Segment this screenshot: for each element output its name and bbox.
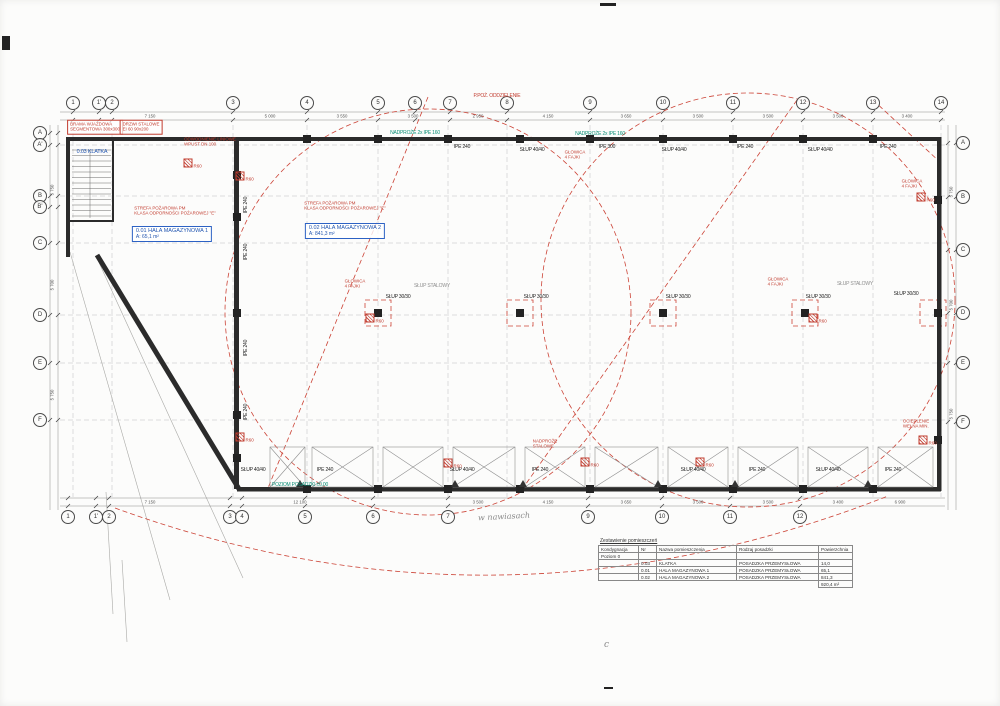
scan-artifact <box>600 3 616 6</box>
scanned-floor-plan-sheet: 11'234567891011121314 11'2345679101112 A… <box>0 0 1000 706</box>
grid-bubble: C <box>956 243 970 257</box>
grid-bubble: 4 <box>235 510 249 524</box>
door-annotation-box: DRZWI STALOWEEI 60 90x200 <box>120 120 163 135</box>
grid-bubble: 11 <box>723 510 737 524</box>
dimension-value: 3 400 <box>833 500 844 505</box>
door-symbols <box>296 480 872 487</box>
col-header: Nr <box>639 546 657 553</box>
grid-bubble: 10 <box>655 510 669 524</box>
dimension-ticks <box>48 110 958 508</box>
structure-label: SŁUP 40/40 <box>681 467 706 473</box>
structure-label: IPE 240 <box>885 467 901 473</box>
dimension-value: 7 150 <box>145 114 156 119</box>
grid-bubble: F <box>956 415 970 429</box>
steel-column-label: SŁUP STALOWY <box>414 283 450 289</box>
staircase-treads <box>72 150 111 218</box>
grid-bubble: A <box>956 136 970 150</box>
dimension-value: 5 750 <box>50 390 55 401</box>
dimension-value: 3 500 <box>408 114 419 119</box>
schedule-row: 0.01 HALA MAGAZYNOWA 1 POSADZKA PRZEMYSŁ… <box>599 567 853 574</box>
dimension-value: 5 750 <box>50 185 55 196</box>
lintel-label: POZIOM POSADZKI ±0,00 <box>272 482 328 488</box>
schedule-row: 0.02 HALA MAGAZYNOWA 2 POSADZKA PRZEMYSŁ… <box>599 574 853 581</box>
lintel-label: NADPROŻE 2x IPE 160 <box>390 130 440 136</box>
room-name-cell: HALA MAGAZYNOWA 1 <box>657 567 737 574</box>
structure-label: IPE 240 <box>532 467 548 473</box>
dimension-value: 4 150 <box>543 500 554 505</box>
structure-label: SŁUP 40/40 <box>520 147 545 153</box>
schedule-total-row: 920,4 m² <box>599 581 853 588</box>
structure-label: IPE 240 <box>243 244 249 260</box>
room-schedule-table: Kondygnacja Nr Nazwa pomieszczenia Rodza… <box>598 545 853 588</box>
dimension-value: 2 950 <box>473 114 484 119</box>
dimension-value: 3 500 <box>693 500 704 505</box>
dimension-value: 5 700 <box>50 280 55 291</box>
room-nr-cell: 0.03 <box>639 560 657 567</box>
grid-bubble: 3 <box>226 96 240 110</box>
structure-label: IPE 240 <box>880 144 896 150</box>
col-header: Powierzchnia <box>819 546 853 553</box>
grid-bubble: 1 <box>61 510 75 524</box>
room-nr-cell: 0.02 <box>639 574 657 581</box>
schedule-header-row: Kondygnacja Nr Nazwa pomieszczenia Rodza… <box>599 546 853 553</box>
room-tag: 0.02 HALA MAGAZYNOWA 2 A: 841,3 m² <box>305 223 385 239</box>
handwritten-mark: c <box>604 640 609 650</box>
r60-marker: R60 <box>919 436 928 445</box>
dimension-value: 4 150 <box>543 114 554 119</box>
dimension-value: 3 400 <box>902 114 913 119</box>
room-name-cell: HALA MAGAZYNOWA 2 <box>657 574 737 581</box>
floor-type-cell: POSADZKA PRZEMYSŁOWA <box>737 574 819 581</box>
dimension-value: 3 500 <box>763 500 774 505</box>
grid-bubble: D <box>33 308 47 322</box>
dimension-value: 3 500 <box>833 114 844 119</box>
structure-label: SŁUP 30/30 <box>386 294 411 300</box>
r60-marker: R60 <box>696 458 705 467</box>
structure-label: IPE 240 <box>243 404 249 420</box>
grid-bubble: 7 <box>441 510 455 524</box>
schedule-row: 0.03 KLATKA POSADZKA PRZEMYSŁOWA 14,0 <box>599 560 853 567</box>
fire-zone-dashed-marks <box>115 93 955 575</box>
structure-label: SŁUP 30/30 <box>524 294 549 300</box>
grid-bubble: 14 <box>934 96 948 110</box>
red-annotation: OCIEPLENIEWEŁNA MIN. <box>903 419 929 430</box>
lintel-label: NADPROŻE 2x IPE 160 <box>575 131 625 137</box>
dimension-value: 5 750 <box>949 187 954 198</box>
floor-type-cell: POSADZKA PRZEMYSŁOWA <box>737 560 819 567</box>
diagonal-wall <box>97 255 239 489</box>
dimension-value: 3 550 <box>337 114 348 119</box>
total-area-cell: 920,4 m² <box>819 581 853 588</box>
floor-type-cell: POSADZKA PRZEMYSŁOWA <box>737 567 819 574</box>
door-annotation-box: BRAMA WJAZDOWASEGMENTOWA 300x300 <box>67 120 123 135</box>
grid-bubble: 2 <box>105 96 119 110</box>
fire-zone-note: STREFA POŻAROWA PMKLASA ODPORNOŚCI POŻAR… <box>304 201 385 212</box>
dimension-value: 5 750 <box>949 409 954 420</box>
dimension-value: 12 100 <box>293 500 306 505</box>
grid-bubble: F <box>33 413 47 427</box>
area-cell: 14,0 <box>819 560 853 567</box>
grid-bubble: 4 <box>300 96 314 110</box>
structure-label: SŁUP 40/40 <box>808 147 833 153</box>
room-area: A: 841,3 m² <box>309 231 381 237</box>
dimension-chains <box>50 112 956 510</box>
level-cell: Poziom 0 <box>599 553 639 560</box>
grid-bubble: 6 <box>366 510 380 524</box>
r60-marker: R60 <box>917 193 926 202</box>
room-name-cell: KLATKA <box>657 560 737 567</box>
r60-marker: R60 <box>184 159 193 168</box>
fire-zone-note: STREFA POŻAROWA PMKLASA ODPORNOŚCI POŻAR… <box>134 206 215 217</box>
grid-bubble: 6 <box>408 96 422 110</box>
r60-marker: R60 <box>809 314 818 323</box>
grid-lines <box>60 125 950 497</box>
structure-label: IPE 240 <box>737 144 753 150</box>
structure-label: SŁUP 40/40 <box>241 467 266 473</box>
schedule-title: Zestawienie pomieszczeń <box>600 538 657 544</box>
grid-bubble: 12 <box>796 96 810 110</box>
grid-bubble: 5 <box>298 510 312 524</box>
r60-marker: R60 <box>236 433 245 442</box>
structure-label: SŁUP 40/40 <box>816 467 841 473</box>
red-annotation: NADPROŻESTALOWE <box>533 439 557 450</box>
column-fire-protection-boxes <box>365 300 946 326</box>
r60-marker: R60 <box>444 459 453 468</box>
dimension-value: 5 000 <box>265 114 276 119</box>
dimension-value: 3 500 <box>693 114 704 119</box>
grid-bubble: C <box>33 236 47 250</box>
structure-label: IPE 240 <box>749 467 765 473</box>
dimension-value: 3 650 <box>621 500 632 505</box>
structure-label: SŁUP 40/40 <box>662 147 687 153</box>
structure-label: IPE 240 <box>454 144 470 150</box>
structure-label: IPE 240 <box>243 340 249 356</box>
structure-label: IPE 240 <box>243 197 249 213</box>
red-annotation: ODWODNIENIE LINIOWEWPUST DN 100 <box>184 137 236 148</box>
dimension-value: 3 500 <box>763 114 774 119</box>
grid-bubble: E <box>956 356 970 370</box>
schedule-rows: 0.03 KLATKA POSADZKA PRZEMYSŁOWA 14,0 0.… <box>599 560 853 581</box>
area-cell: 841,3 <box>819 574 853 581</box>
pencil-construction-lines <box>70 252 243 642</box>
col-header: Nazwa pomieszczenia <box>657 546 737 553</box>
room-nr-cell: 0.01 <box>639 567 657 574</box>
area-cell: 65,1 <box>819 567 853 574</box>
dimension-value: 6 900 <box>895 500 906 505</box>
r60-marker: R60 <box>366 314 375 323</box>
col-header: Rodzaj posadzki <box>737 546 819 553</box>
grid-bubble: 11 <box>726 96 740 110</box>
grid-bubble: 1' <box>89 510 103 524</box>
grid-bubble: 9 <box>583 96 597 110</box>
room-tag: 0.01 HALA MAGAZYNOWA 1 A: 65,1 m² <box>132 226 212 242</box>
grid-bubble: 12 <box>793 510 807 524</box>
dimension-value: 3 650 <box>621 114 632 119</box>
grid-bubble: B <box>956 190 970 204</box>
grid-bubble: 1' <box>92 96 106 110</box>
grid-bubble: B' <box>33 200 47 214</box>
r60-marker: R60 <box>581 458 590 467</box>
grid-bubble: D <box>956 306 970 320</box>
structure-label: IPE 240 <box>317 467 333 473</box>
schedule-level-row: Poziom 0 <box>599 553 853 560</box>
structure-label: SŁUP 30/30 <box>894 291 919 297</box>
grid-bubble: 7 <box>443 96 457 110</box>
scan-artifact <box>2 36 10 50</box>
grid-bubble: A' <box>33 138 47 152</box>
grid-bubble: 2 <box>102 510 116 524</box>
structure-label: IPE 300 <box>599 144 615 150</box>
col-header: Kondygnacja <box>599 546 639 553</box>
dimension-value: 3 500 <box>473 500 484 505</box>
fire-separation-label: P.POŻ. ODDZIELENIE <box>474 93 521 99</box>
grid-bubble: 5 <box>371 96 385 110</box>
r60-marker: R60 <box>236 172 245 181</box>
red-annotation: GŁOWICA4 FAJKI <box>345 279 366 290</box>
grid-bubble: 10 <box>656 96 670 110</box>
structure-label: SŁUP 30/30 <box>666 294 691 300</box>
dimension-value: 5 700 <box>949 300 954 311</box>
steel-column-label: SŁUP STALOWY <box>837 281 873 287</box>
dimension-value: 7 150 <box>145 500 156 505</box>
grid-bubble: 1 <box>66 96 80 110</box>
room-area: A: 65,1 m² <box>136 234 208 240</box>
room-number-label: 0.03 KLATKA <box>77 149 108 155</box>
red-annotation: GŁOWICA4 FAJKI <box>768 277 789 288</box>
red-annotation: GŁOWICA4 FAJKI <box>565 150 586 161</box>
grid-bubble: 9 <box>581 510 595 524</box>
structure-label: SŁUP 30/30 <box>806 294 831 300</box>
grid-bubble: 13 <box>866 96 880 110</box>
grid-bubble: E <box>33 356 47 370</box>
scan-artifact <box>604 687 613 689</box>
red-annotation: GŁOWICA4 FAJKI <box>902 179 923 190</box>
